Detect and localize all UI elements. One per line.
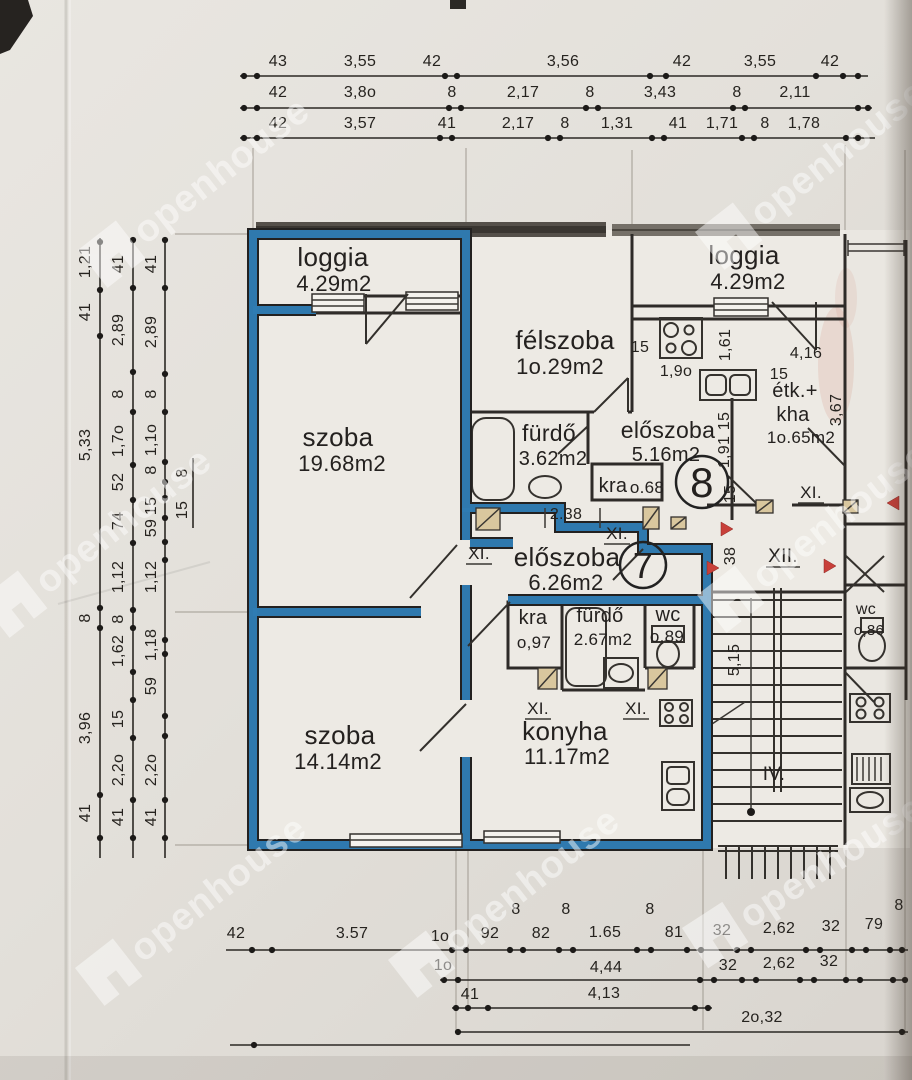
room-area: o.68: [630, 478, 664, 497]
dim-label: 41: [438, 115, 456, 132]
room-name-eloszoba-upper: előszoba: [621, 417, 715, 443]
dim-label: 8: [561, 901, 570, 918]
dim-label: 15: [716, 412, 733, 430]
dim-label: 81: [665, 924, 683, 941]
dim-label: 3,55: [344, 53, 376, 70]
dim-label: 1.65: [589, 924, 621, 941]
dim-label: 5,15: [726, 644, 743, 676]
dim-label: 2,89: [110, 314, 127, 346]
door-sill: [643, 507, 659, 529]
unit-number-7: 7: [633, 545, 653, 586]
room-name-wc-lower: wc: [654, 604, 680, 626]
dim-label: 41: [77, 804, 94, 822]
dim-label: 1,12: [110, 561, 127, 593]
dim-label: 3,67: [828, 394, 845, 426]
room-name-etk-kha-2: kha: [776, 404, 810, 426]
room-name-kra-upper: kra: [599, 475, 628, 497]
zone-mark-xi: XI.: [606, 524, 628, 543]
dim-label: 8: [560, 115, 569, 132]
dim-label: 2,2o: [143, 754, 160, 786]
dim-label: 4,13: [588, 985, 620, 1002]
dim-label: 82: [532, 925, 550, 942]
door-sill: [648, 668, 667, 689]
room-name-loggia-left: loggia: [297, 242, 368, 272]
dim-label: 8: [732, 84, 741, 101]
dim-label: 2,17: [502, 115, 534, 132]
dim-label: 5,33: [77, 429, 94, 461]
dim-label: 8: [447, 84, 456, 101]
dim-label: 1,1o: [143, 424, 160, 456]
window: [406, 292, 458, 310]
room-name-wc-stair: wc: [855, 601, 876, 618]
dim-label: 32: [820, 953, 838, 970]
room-name-furdo-lower: fürdő: [576, 605, 623, 627]
dim-label: 38: [722, 547, 739, 565]
room-name-kra-lower: kra: [519, 607, 548, 629]
dim-label: 15: [631, 339, 649, 356]
room-area: 6.26m2: [528, 570, 603, 595]
zone-mark-xi: XI.: [800, 483, 822, 502]
window: [312, 294, 364, 312]
dim-label: 32: [719, 957, 737, 974]
dim-label: 1,7o: [110, 425, 127, 457]
floorplan-drawing: 433,55423,56423,5542 423,8o82,1783,4382,…: [0, 0, 912, 1080]
dim-label: 41: [77, 303, 94, 321]
dim-label: 42: [227, 925, 245, 942]
dim-label: 1,62: [110, 635, 127, 667]
dim-label: 3,57: [344, 115, 376, 132]
dim-label: 1,31: [601, 115, 633, 132]
dim-label: 1,12: [143, 561, 160, 593]
zone-mark-xi: XI.: [625, 699, 647, 718]
room-area: 4.29m2: [296, 271, 371, 296]
dim-label: 8: [110, 614, 127, 623]
room-area: 1o.65m2: [767, 428, 835, 447]
dim-label: 3,96: [77, 712, 94, 744]
zone-mark-xi: XI.: [527, 699, 549, 718]
dim-label: 2,17: [507, 84, 539, 101]
dim-label: 8: [143, 389, 160, 398]
dim-label: 3,8o: [344, 84, 376, 101]
dim-label: 41: [461, 986, 479, 1003]
dim-label: 1,18: [143, 629, 160, 661]
watermark-text: openhouse: [122, 807, 315, 970]
room-name-konyha: konyha: [522, 716, 608, 746]
dim-label: 43: [269, 53, 287, 70]
room-area: 3.62m2: [519, 448, 588, 470]
door-sill: [756, 500, 773, 513]
room-area: 1o.29m2: [516, 354, 604, 379]
room-area: 4.29m2: [710, 269, 785, 294]
door-sill: [671, 517, 686, 529]
dim-label: 2,11: [779, 84, 810, 101]
dim-label: 1,71: [706, 115, 738, 132]
room-area: 19.68m2: [298, 451, 386, 476]
dim-label: 8: [760, 115, 769, 132]
room-name-felszoba: félszoba: [515, 325, 614, 355]
window: [350, 834, 462, 847]
zone-mark-iv: IV.: [763, 764, 785, 785]
scanned-floorplan-page: 433,55423,56423,5542 423,8o82,1783,4382,…: [0, 0, 912, 1080]
dim-label: 8: [645, 901, 654, 918]
dim-label: 15: [110, 710, 127, 728]
dim-label: 8: [585, 84, 594, 101]
dim-label: 41: [669, 115, 687, 132]
room-area: 14.14m2: [294, 749, 382, 774]
dim-label: 2,2o: [110, 754, 127, 786]
dim-label: 4,44: [590, 959, 622, 976]
dim-label: 41: [110, 808, 127, 826]
dim-label: 1,9o: [660, 363, 692, 380]
dim-label: 3,56: [547, 53, 579, 70]
window: [714, 298, 768, 316]
dim-label: 52: [110, 473, 127, 491]
openhouse-watermark: openhouse: [75, 803, 315, 1006]
dim-label: 59: [143, 677, 160, 695]
bottom-dimension-rows: 423.571o9288281.65881322,6232798 1o4,443…: [226, 897, 908, 1048]
dim-label: 41: [143, 255, 160, 273]
dim-label: 4,16: [790, 345, 822, 362]
unit-number-8: 8: [690, 459, 714, 506]
dim-label: 2,89: [143, 316, 160, 348]
room-name-szoba-small: szoba: [305, 720, 376, 750]
dim-label: 8: [77, 613, 94, 622]
dim-label: 42: [423, 53, 441, 70]
dim-label: 1,78: [788, 115, 820, 132]
room-area: o,86: [854, 622, 884, 639]
dim-label: 79: [865, 916, 883, 933]
openhouse-watermark: openhouse: [0, 435, 220, 638]
room-name-eloszoba-lower: előszoba: [514, 542, 621, 572]
door-sill: [538, 668, 557, 689]
dim-label: 8: [110, 389, 127, 398]
door-sill: [476, 508, 500, 530]
zone-mark-xi: XI.: [468, 544, 490, 563]
top-dimension-rows: 433,55423,56423,5542 423,8o82,1783,4382,…: [240, 53, 875, 141]
dim-label: 2.38: [550, 506, 582, 523]
dim-label: 41: [143, 808, 160, 826]
room-name-furdo-upper: fürdő: [522, 420, 576, 446]
dim-label: 42: [673, 53, 691, 70]
dim-label: 2o,32: [741, 1009, 783, 1026]
dim-label: 32: [822, 918, 840, 935]
dim-label: 2,62: [763, 955, 795, 972]
room-name-etk-kha: étk.+: [772, 380, 817, 402]
room-area: 11.17m2: [524, 744, 610, 769]
room-area: 2.67m2: [574, 630, 633, 649]
dim-label: 3,55: [744, 53, 776, 70]
dim-label: 3.57: [336, 925, 368, 942]
room-area: o,97: [517, 633, 551, 652]
dim-label: 42: [821, 53, 839, 70]
dim-label: 1,61: [717, 329, 734, 361]
room-area: o,89: [650, 627, 684, 646]
dim-label: 3,43: [644, 84, 676, 101]
room-name-szoba-large: szoba: [303, 422, 374, 452]
